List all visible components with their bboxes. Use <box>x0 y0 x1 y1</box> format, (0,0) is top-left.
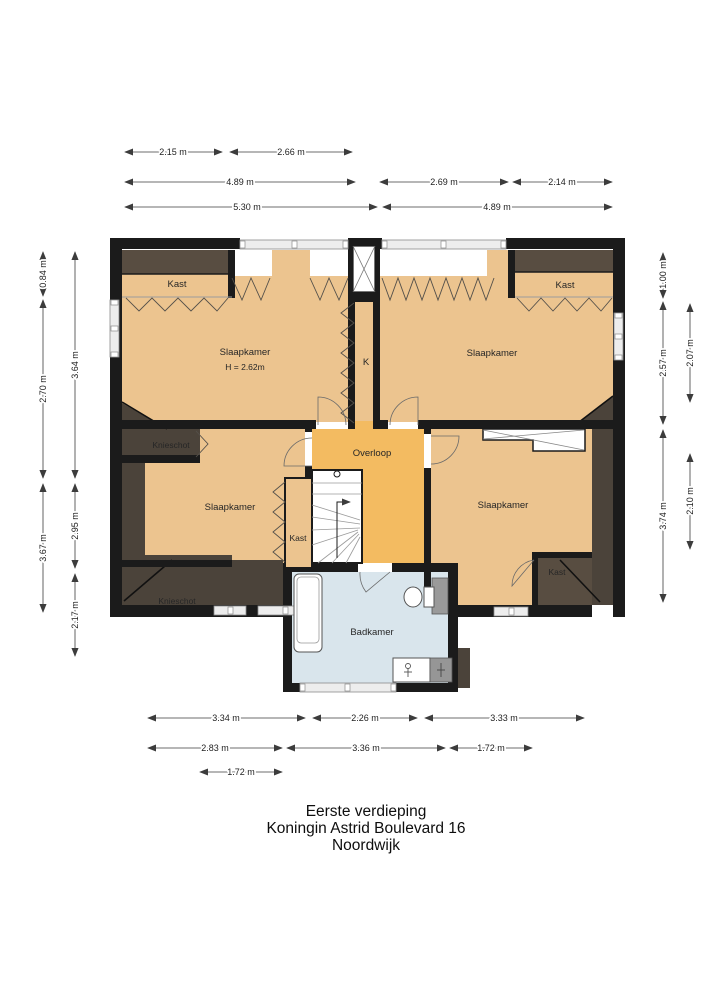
closet-top-left-label: Kast <box>167 279 186 290</box>
title-block: Eerste verdieping Koningin Astrid Boulev… <box>266 803 465 854</box>
duct-wall-right <box>373 300 380 429</box>
window-bathroom <box>300 683 396 692</box>
dim-label: 3.74 m <box>658 502 668 530</box>
slope-above-closet-top-left <box>122 250 235 274</box>
kneewall-lower-wall <box>122 560 232 567</box>
bedroom-mid-left-label: Slaapkamer <box>205 502 256 513</box>
window-top-right <box>382 240 506 249</box>
room-fills <box>122 250 613 683</box>
dim-label: 2.07 m <box>685 339 695 367</box>
dim-label: 4.89 m <box>226 177 254 187</box>
wall-mid-d <box>418 420 625 429</box>
closet-by-stairs-label: Kast <box>289 533 307 543</box>
dim-label: 1.00 m <box>658 261 668 289</box>
landing-wall-left-stub <box>305 429 312 432</box>
slope-closet-bottom-right <box>538 552 592 605</box>
dim-label: 2.15 m <box>159 147 187 157</box>
dim-label: 3.64 m <box>70 351 80 379</box>
dim-label: 2.70 m <box>38 375 48 403</box>
bedroom-top-right-dormer <box>487 250 508 278</box>
dimensions-bottom: 3.34 m 2.26 m 3.33 m 2.83 m 3.36 m 1.72 … <box>148 713 584 777</box>
dim-label: 2.10 m <box>685 487 695 515</box>
kneewall-lower-label: Knieschot <box>158 596 196 606</box>
bathroom-label: Badkamer <box>350 627 393 638</box>
dim-label: 2.26 m <box>351 713 379 723</box>
dim-label: 3.67 m <box>38 534 48 562</box>
landing-wall-right-stub <box>424 429 431 434</box>
bedroom-top-left-height: H = 2.62m <box>225 362 264 372</box>
duct-label: K <box>363 357 370 368</box>
dimensions-top: 2.15 m 2.66 m 4.89 m 2.69 m 2.14 m 5.30 … <box>125 147 612 212</box>
slope-right-band <box>592 429 613 605</box>
bedroom-top-right-label: Slaapkamer <box>467 348 518 359</box>
dim-label: 1.72 m <box>477 743 505 753</box>
dim-label: 2.17 m <box>70 601 80 629</box>
dim-label: 2.14 m <box>548 177 576 187</box>
kneewall-upper-label: Knieschot <box>152 440 190 450</box>
dim-label: 3.34 m <box>212 713 240 723</box>
dim-label: 5.30 m <box>233 202 261 212</box>
landing-wall-right <box>424 468 431 604</box>
kneewall-upper-wall <box>112 455 200 463</box>
closet-bottom-right-label: Kast <box>548 567 566 577</box>
stair-newel <box>334 471 340 477</box>
toilet-tank <box>424 587 434 607</box>
title-address: Koningin Astrid Boulevard 16 <box>266 820 465 837</box>
window-left <box>110 300 119 357</box>
floorplan-drawing: Kast Slaapkamer H = 2.62m K Slaapkamer K… <box>0 0 707 1000</box>
landing-label: Overloop <box>353 448 392 459</box>
closet-top-right-label: Kast <box>555 280 574 291</box>
window-bottom-right <box>494 607 528 616</box>
wall-top-c <box>506 238 625 249</box>
dim-label: 2.57 m <box>658 349 668 377</box>
dim-label: 2.95 m <box>70 512 80 540</box>
window-top-left <box>240 240 348 249</box>
dimensions-left: 0.84 m 2.70 m 3.67 m 3.64 m 2.95 m 2.17 … <box>38 252 80 656</box>
slope-above-closet-top-right <box>515 250 613 272</box>
closet-br-wall-top <box>532 552 592 558</box>
landing-corridor <box>355 421 373 430</box>
window-bottom-left-a <box>214 606 246 615</box>
title-floor: Eerste verdieping <box>306 803 427 820</box>
bedroom-top-left-dormer <box>272 250 310 278</box>
wall-top-a <box>110 238 240 249</box>
dim-label: 1.72 m <box>227 767 255 777</box>
dim-label: 3.33 m <box>490 713 518 723</box>
dim-label: 0.84 m <box>38 260 48 288</box>
washbasin-unit <box>393 658 430 682</box>
slope-left-of-bathroom <box>232 560 283 612</box>
window-right <box>614 313 623 360</box>
bedroom-top-left-label: Slaapkamer <box>220 347 271 358</box>
dim-label: 2.69 m <box>430 177 458 187</box>
closet-by-stairs-box <box>285 478 312 568</box>
dim-label: 3.36 m <box>352 743 380 753</box>
dim-label: 2.83 m <box>201 743 229 753</box>
dim-label: 2.66 m <box>277 147 305 157</box>
landing-floor-lower <box>362 470 424 563</box>
wall-mid-a <box>110 420 316 429</box>
dim-label: 4.89 m <box>483 202 511 212</box>
dimensions-right: 1.00 m 2.57 m 3.74 m 2.07 m 2.10 m <box>658 253 695 602</box>
bathtub <box>294 574 322 652</box>
bathroom-wall-left <box>283 563 292 692</box>
closet-tr-wall <box>508 250 515 298</box>
title-city: Noordwijk <box>332 837 400 854</box>
toilet-bowl <box>404 587 422 607</box>
floorplan-page: Kast Slaapkamer H = 2.62m K Slaapkamer K… <box>0 0 707 1000</box>
staircase <box>312 470 362 563</box>
bedroom-bottom-right-label: Slaapkamer <box>478 500 529 511</box>
